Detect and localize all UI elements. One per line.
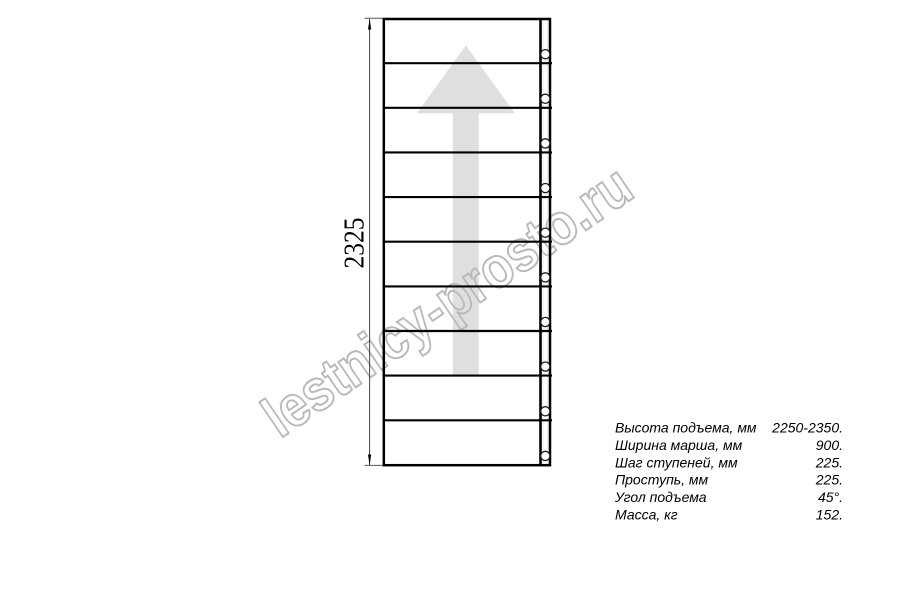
svg-text:Шаг ступеней, мм: Шаг ступеней, мм <box>615 454 738 470</box>
svg-text:Проступь, мм: Проступь, мм <box>615 472 709 488</box>
svg-text:2250-2350.: 2250-2350. <box>771 420 843 436</box>
svg-text:Масса, кг: Масса, кг <box>615 506 678 522</box>
svg-text:45°.: 45°. <box>818 489 843 505</box>
svg-text:152.: 152. <box>816 506 843 522</box>
svg-text:225.: 225. <box>815 454 843 470</box>
svg-text:225.: 225. <box>815 472 843 488</box>
svg-text:Угол подъема: Угол подъема <box>614 489 707 505</box>
svg-text:Высота подъема, мм: Высота подъема, мм <box>615 420 757 436</box>
svg-text:Ширина марша, мм: Ширина марша, мм <box>615 437 743 453</box>
svg-text:2325: 2325 <box>338 218 370 269</box>
svg-text:900.: 900. <box>816 437 843 453</box>
